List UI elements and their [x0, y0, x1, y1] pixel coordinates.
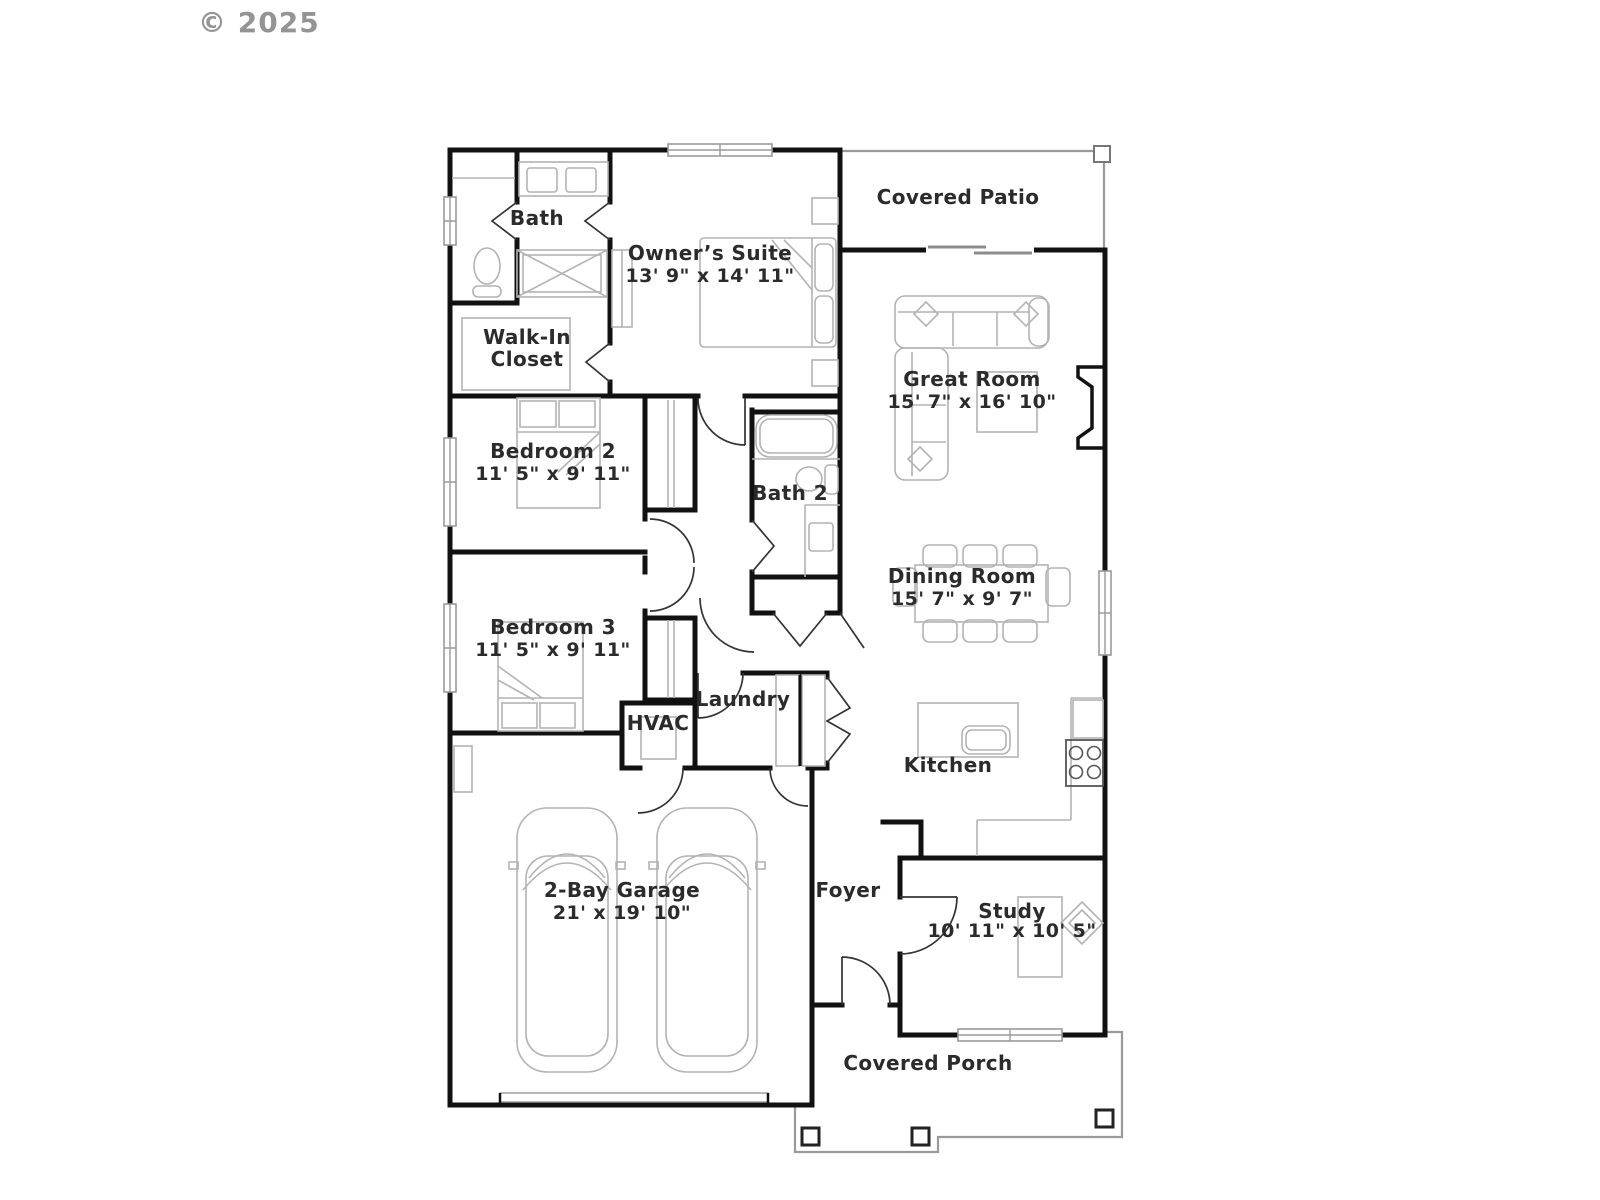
nightstand [812, 360, 838, 386]
label-garage-dims: 21' x 19' 10" [553, 902, 691, 924]
fireplace [1078, 367, 1105, 448]
label-dining-room-dims: 15' 7" x 9' 7" [891, 588, 1033, 610]
label-great-room-dims: 15' 7" x 16' 10" [887, 391, 1056, 413]
label-kitchen: Kitchen [904, 753, 993, 777]
laundry-opening-jambs [827, 677, 850, 763]
water-heater [454, 746, 472, 792]
car [649, 808, 765, 1072]
label-bedroom3-dims: 11' 5" x 9' 11" [475, 639, 630, 661]
nightstand [812, 198, 838, 224]
label-walk-in-closet-2: Closet [491, 347, 564, 371]
bath-vanity [519, 162, 608, 196]
closet-sliders [668, 620, 674, 698]
toilet [473, 248, 501, 297]
owners-suite-door [698, 398, 745, 445]
front-door [842, 957, 890, 1005]
kitchen-island [918, 703, 1018, 757]
window [444, 197, 456, 245]
garage-door [500, 1093, 768, 1103]
label-owners-suite-dims: 13' 9" x 14' 11" [625, 265, 794, 287]
garage-entry-door [770, 768, 808, 806]
label-bedroom3: Bedroom 3 [490, 615, 616, 639]
car [509, 808, 625, 1072]
window [444, 438, 456, 526]
copyright-text: © 2025 [198, 6, 320, 39]
hvac-door [638, 768, 683, 813]
covered-porch-outline [795, 1032, 1122, 1152]
label-covered-porch: Covered Porch [843, 1051, 1012, 1075]
room-labels: © 2025 Bath Walk-In Closet Owner’s Suite… [198, 6, 1097, 1075]
closet-sliders [668, 400, 674, 508]
label-garage: 2-Bay Garage [544, 878, 700, 902]
label-laundry: Laundry [696, 687, 791, 711]
bath-opening [585, 202, 610, 240]
label-hvac: HVAC [627, 711, 690, 735]
closet-opening [586, 343, 610, 382]
label-covered-patio: Covered Patio [877, 185, 1040, 209]
label-great-room: Great Room [903, 367, 1041, 391]
bedroom3-door [650, 567, 694, 611]
label-study-dims: 10' 11" x 10' 5" [927, 920, 1096, 942]
dining-opening-jamb [840, 613, 864, 648]
label-bath2: Bath 2 [752, 481, 828, 505]
shower [517, 250, 607, 297]
label-dining-room: Dining Room [888, 564, 1036, 588]
kitchen-counter [977, 698, 1103, 856]
bathtub [752, 415, 840, 459]
window [444, 604, 456, 692]
linen-door [773, 613, 827, 646]
porch-post [1096, 1110, 1113, 1127]
porch-post [912, 1128, 929, 1145]
label-bath: Bath [510, 206, 564, 230]
label-bedroom2-dims: 11' 5" x 9' 11" [475, 463, 630, 485]
sliding-door [926, 243, 1034, 257]
bedroom2-door [650, 519, 694, 563]
porch-post [802, 1128, 819, 1145]
bath2-opening [752, 520, 774, 572]
label-walk-in-closet-1: Walk-In [483, 325, 571, 349]
refrigerator [1073, 700, 1103, 738]
window [1099, 571, 1111, 655]
floor-plan-drawing: © 2025 Bath Walk-In Closet Owner’s Suite… [0, 0, 1600, 1200]
window [668, 144, 772, 156]
label-foyer: Foyer [815, 878, 880, 902]
bath2-vanity [805, 505, 840, 577]
label-bedroom2: Bedroom 2 [490, 439, 616, 463]
hall-opening-arc [700, 598, 754, 652]
label-owners-suite: Owner’s Suite [628, 241, 792, 265]
window [958, 1029, 1062, 1041]
floor-plan-page: © 2025 Bath Walk-In Closet Owner’s Suite… [0, 0, 1600, 1200]
